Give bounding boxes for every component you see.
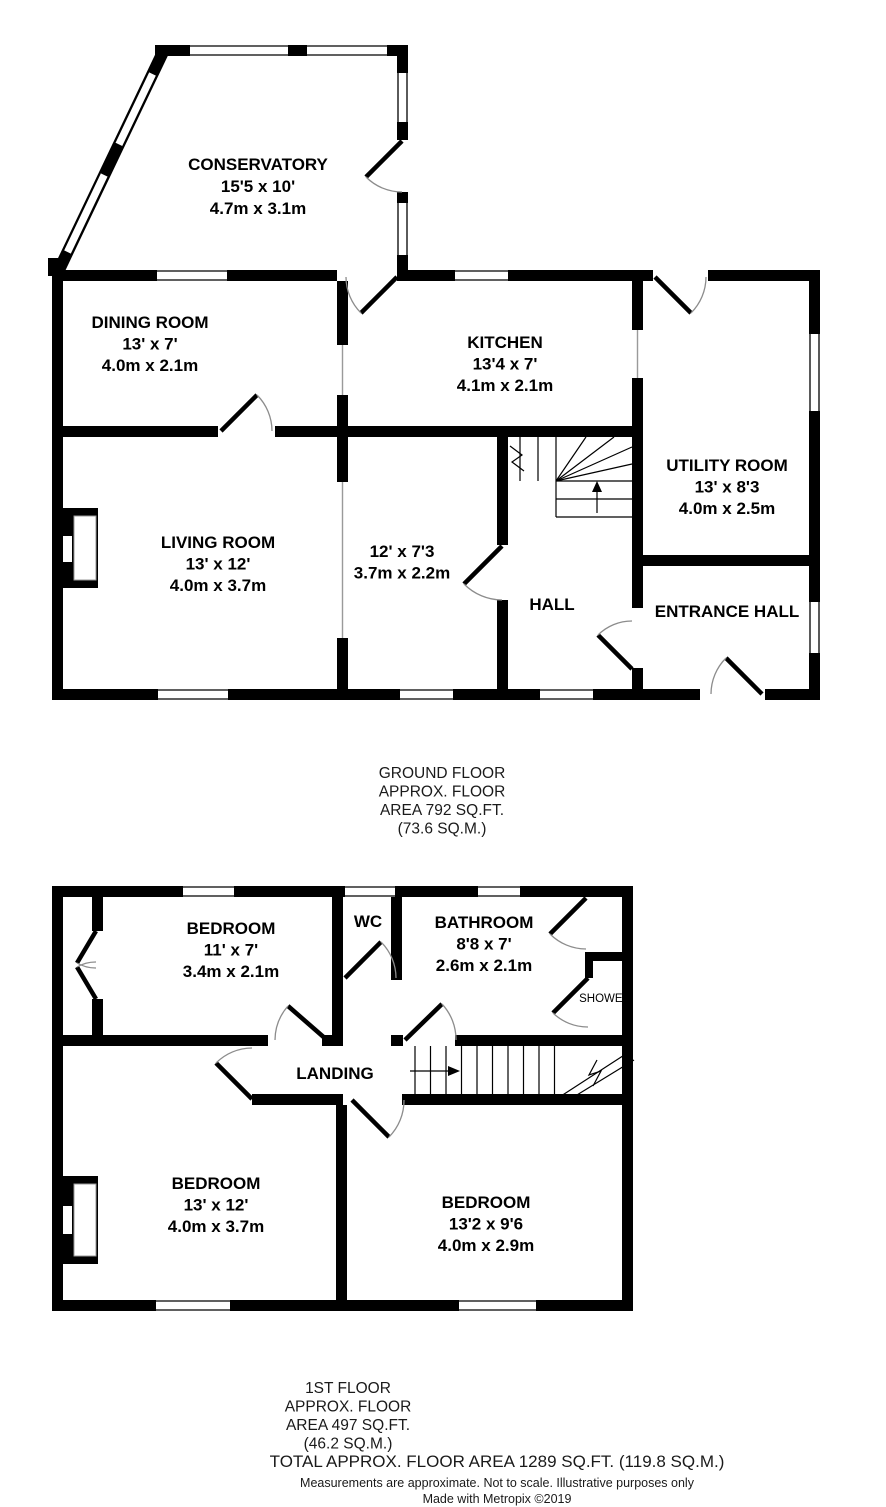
room-label-wc: WC — [354, 912, 382, 931]
window — [459, 1300, 536, 1311]
door — [598, 621, 632, 669]
door — [221, 395, 272, 431]
room-label-conservatory-ft: 15'5 x 10' — [221, 177, 295, 196]
door — [345, 942, 396, 978]
door — [346, 277, 397, 313]
disclaimer-text: Measurements are approximate. Not to sca… — [300, 1476, 695, 1490]
closet-doors — [77, 931, 96, 999]
door — [405, 1004, 456, 1040]
window — [158, 689, 228, 700]
window — [156, 1300, 230, 1311]
room-label-living-name: LIVING ROOM — [161, 533, 275, 552]
door — [275, 1006, 327, 1040]
door — [366, 141, 402, 192]
window — [190, 45, 288, 56]
room-label-living-m: 4.0m x 3.7m — [170, 576, 266, 595]
door — [550, 898, 586, 949]
ground-room-labels: CONSERVATORY 15'5 x 10' 4.7m x 3.1m DINI… — [91, 155, 799, 621]
window — [540, 689, 593, 700]
room-label-entrance: ENTRANCE HALL — [655, 602, 800, 621]
ground-caption-line2: APPROX. FLOOR — [379, 784, 506, 801]
first-caption-line1: 1ST FLOOR — [305, 1380, 391, 1397]
window — [307, 45, 387, 56]
ground-caption-line4: (73.6 SQ.M.) — [398, 821, 487, 838]
room-label-kitchen-m: 4.1m x 2.1m — [457, 376, 553, 395]
window — [400, 689, 453, 700]
window — [809, 602, 820, 653]
first-caption-line4: (46.2 SQ.M.) — [304, 1436, 393, 1453]
window — [455, 270, 508, 281]
room-label-bathroom-ft: 8'8 x 7' — [456, 935, 511, 954]
room-label-bedroom1-name: BEDROOM — [187, 919, 276, 938]
room-label-bathroom-m: 2.6m x 2.1m — [436, 956, 532, 975]
room-label-dining-m: 4.0m x 2.1m — [102, 356, 198, 375]
total-area-text: TOTAL APPROX. FLOOR AREA 1289 SQ.FT. (11… — [270, 1452, 725, 1471]
room-label-shower: SHOWER — [579, 993, 631, 1005]
room-label-bedroom3-name: BEDROOM — [442, 1193, 531, 1212]
stairs-break-mark — [589, 1060, 601, 1086]
window — [183, 886, 234, 897]
fireplace-first — [63, 1176, 98, 1264]
room-label-inner-ft: 12' x 7'3 — [370, 542, 435, 561]
stairs-break-mark — [510, 446, 524, 471]
door — [711, 658, 762, 694]
credit-text: Made with Metropix ©2019 — [423, 1492, 572, 1506]
room-label-dining-name: DINING ROOM — [91, 313, 208, 332]
window — [397, 203, 408, 255]
ground-caption-line3: AREA 792 SQ.FT. — [380, 802, 504, 819]
room-label-inner-m: 3.7m x 2.2m — [354, 564, 450, 583]
ground-floor-plan: CONSERVATORY 15'5 x 10' 4.7m x 3.1m DINI… — [48, 45, 820, 700]
room-label-conservatory-name: CONSERVATORY — [188, 155, 328, 174]
room-label-living-ft: 13' x 12' — [186, 555, 251, 574]
window — [157, 270, 227, 281]
window — [115, 72, 156, 146]
room-label-landing: LANDING — [296, 1064, 373, 1083]
door — [352, 1100, 404, 1137]
room-label-conservatory-m: 4.7m x 3.1m — [210, 199, 306, 218]
door — [464, 546, 502, 600]
window — [809, 334, 820, 411]
room-label-utility-ft: 13' x 8'3 — [695, 478, 760, 497]
door — [216, 1048, 252, 1099]
room-label-bathroom-name: BATHROOM — [435, 913, 534, 932]
room-label-bedroom2-ft: 13' x 12' — [184, 1196, 249, 1215]
room-label-bedroom3-m: 4.0m x 2.9m — [438, 1236, 534, 1255]
room-label-utility-name: UTILITY ROOM — [666, 456, 788, 475]
stairs-up-arrow — [592, 481, 602, 492]
room-label-bedroom1-ft: 11' x 7' — [204, 941, 258, 960]
window — [345, 886, 395, 897]
window — [64, 173, 109, 254]
first-caption-line2: APPROX. FLOOR — [285, 1399, 412, 1416]
first-floor-plan: BEDROOM 11' x 7' 3.4m x 2.1m WC BATHROOM… — [52, 886, 634, 1311]
stairs-direction-arrow — [448, 1066, 460, 1076]
stairs-ground — [510, 437, 632, 517]
floorplan-svg: CONSERVATORY 15'5 x 10' 4.7m x 3.1m DINI… — [0, 0, 886, 1507]
room-label-kitchen-ft: 13'4 x 7' — [473, 355, 538, 374]
room-label-bedroom1-m: 3.4m x 2.1m — [183, 962, 279, 981]
first-walls — [52, 886, 633, 1311]
fireplace-ground — [63, 508, 98, 588]
room-label-kitchen-name: KITCHEN — [467, 333, 543, 352]
window — [397, 73, 408, 122]
room-label-bedroom2-m: 4.0m x 3.7m — [168, 1217, 264, 1236]
first-caption-line3: AREA 497 SQ.FT. — [286, 1417, 410, 1434]
door — [655, 277, 706, 313]
window — [478, 886, 520, 897]
room-label-bedroom3-ft: 13'2 x 9'6 — [449, 1215, 523, 1234]
ground-caption-line1: GROUND FLOOR — [379, 765, 506, 782]
room-label-utility-m: 4.0m x 2.5m — [679, 499, 775, 518]
room-label-dining-ft: 13' x 7' — [122, 335, 177, 354]
room-label-bedroom2-name: BEDROOM — [172, 1174, 261, 1193]
stairs-first — [410, 1046, 634, 1098]
floorplan-page: CONSERVATORY 15'5 x 10' 4.7m x 3.1m DINI… — [0, 0, 886, 1507]
room-label-hall: HALL — [529, 595, 574, 614]
